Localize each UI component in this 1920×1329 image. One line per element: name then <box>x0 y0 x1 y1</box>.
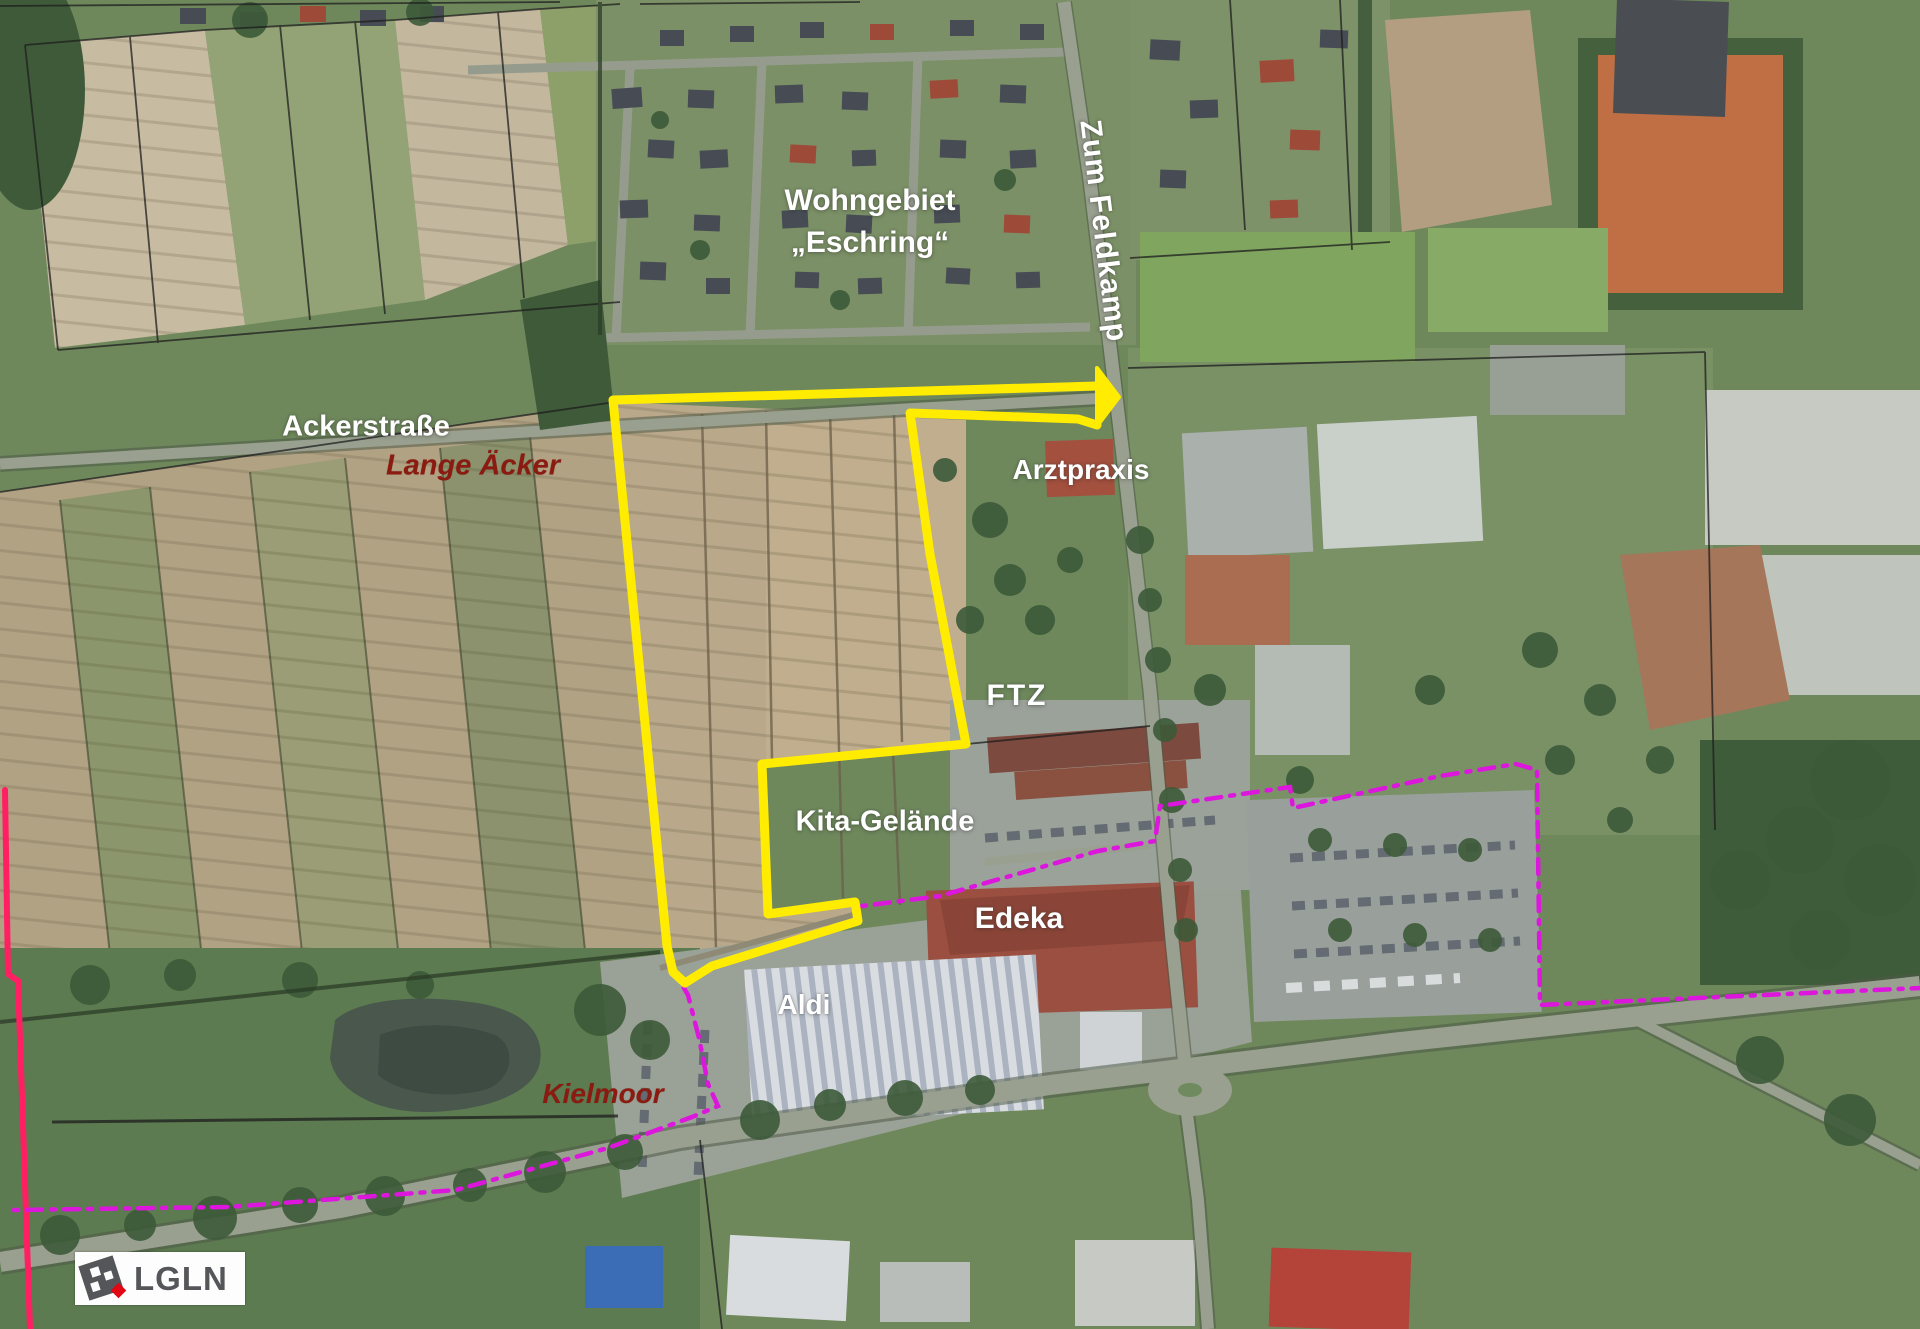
tree <box>1153 718 1177 742</box>
house-building <box>940 140 967 159</box>
tree <box>282 1187 318 1223</box>
house-building <box>852 150 877 167</box>
tree <box>1025 605 1055 635</box>
house-building <box>795 272 820 289</box>
tree <box>1766 806 1834 874</box>
house-building <box>1259 59 1294 83</box>
tree <box>574 984 626 1036</box>
area-label-line1: Wohngebiet <box>720 180 1020 222</box>
tree <box>830 290 850 310</box>
house-building <box>930 79 959 98</box>
lgln-logo-mark <box>75 1252 133 1305</box>
house-building <box>950 20 974 36</box>
house-building <box>1149 39 1180 61</box>
school-building <box>1182 427 1313 558</box>
house-building <box>1160 170 1187 189</box>
tree <box>1522 632 1558 668</box>
house-building <box>775 85 804 104</box>
area-label-kielmoor: Kielmoor <box>542 1080 663 1108</box>
house-building <box>611 87 642 109</box>
tree <box>1328 918 1352 942</box>
field-label-lange-aecker: Lange Äcker <box>386 452 560 481</box>
house-building <box>1000 85 1027 104</box>
tree <box>1824 1094 1876 1146</box>
house-building <box>706 278 730 294</box>
large-building <box>1705 390 1920 545</box>
poi-label-kita-gelaende: Kita-Gelände <box>796 808 975 837</box>
house-building <box>800 22 824 38</box>
tree <box>933 458 957 482</box>
house-building <box>180 8 206 24</box>
house-building <box>688 90 715 109</box>
house-building <box>694 215 721 232</box>
tree <box>740 1100 780 1140</box>
tree <box>1710 850 1770 910</box>
house-building <box>1270 200 1299 219</box>
tree <box>1308 828 1332 852</box>
tree <box>1138 588 1162 612</box>
building <box>726 1235 850 1321</box>
house-building <box>300 6 326 22</box>
poi-label-edeka: Edeka <box>975 904 1063 934</box>
tree <box>956 606 984 634</box>
house-building <box>648 139 675 158</box>
tree <box>40 1215 80 1255</box>
tree <box>1584 684 1616 716</box>
tree <box>965 1075 995 1105</box>
tree <box>164 959 196 991</box>
house-building <box>858 278 883 295</box>
poi-label-arztpraxis: Arztpraxis <box>1013 456 1150 484</box>
tree <box>70 965 110 1005</box>
tree <box>1126 526 1154 554</box>
tree <box>524 1151 566 1193</box>
house-building <box>660 30 684 46</box>
tree <box>690 240 710 260</box>
tree <box>1403 923 1427 947</box>
school-building <box>1317 416 1483 549</box>
house-building <box>1320 30 1349 49</box>
house-building <box>700 149 729 168</box>
field-parcel <box>1385 10 1552 232</box>
tree <box>1194 674 1226 706</box>
tree <box>193 1196 237 1240</box>
tree <box>1478 928 1502 952</box>
plaza <box>1185 555 1290 645</box>
tree <box>1159 787 1185 813</box>
building <box>1269 1248 1412 1329</box>
tree <box>1607 807 1633 833</box>
poi-label-aldi: Aldi <box>778 991 831 1019</box>
tree <box>124 1209 156 1241</box>
building <box>1075 1240 1195 1326</box>
house-building <box>1190 100 1219 119</box>
field-lange-aecker <box>0 402 668 1022</box>
poi-label-ftz: FTZ <box>987 681 1048 711</box>
tree <box>814 1089 846 1121</box>
house-building <box>620 200 649 219</box>
street-label-ackerstrasse: Ackerstraße <box>282 413 450 442</box>
lgln-logo: LGLN <box>75 1252 245 1305</box>
bare-ground <box>1620 545 1790 730</box>
tree <box>1168 858 1192 882</box>
tree <box>651 111 669 129</box>
house-building <box>842 92 869 111</box>
tree <box>1844 844 1916 916</box>
tree <box>972 502 1008 538</box>
tree <box>887 1080 923 1116</box>
house-building <box>640 262 667 281</box>
barn-building <box>1613 0 1729 117</box>
house-building <box>1010 149 1037 168</box>
tree <box>232 2 268 38</box>
tree <box>1646 746 1674 774</box>
house-building <box>1016 272 1041 289</box>
school-building <box>1255 645 1350 755</box>
tree <box>1145 647 1171 673</box>
sports-field <box>1428 228 1608 332</box>
sports-field <box>1140 232 1415 362</box>
tree <box>1057 547 1083 573</box>
area-label-line2: „Eschring“ <box>720 222 1020 264</box>
tree <box>994 564 1026 596</box>
building <box>1080 1012 1142 1070</box>
house-building <box>946 267 971 284</box>
tree <box>1810 740 1890 820</box>
house-building <box>360 10 386 26</box>
tree <box>1174 918 1198 942</box>
lgln-logo-text: LGLN <box>134 1260 228 1298</box>
house-building <box>730 26 754 42</box>
house-building <box>870 24 894 40</box>
house-building <box>1290 129 1321 150</box>
area-label-wohngebiet-eschring: Wohngebiet „Eschring“ <box>720 180 1020 264</box>
tree <box>1415 675 1445 705</box>
tree <box>630 1020 670 1060</box>
building <box>880 1262 970 1322</box>
aerial-map: Wohngebiet „Eschring“ Zum Feldkamp Acker… <box>0 0 1920 1329</box>
tree <box>1383 833 1407 857</box>
blue-building <box>585 1246 663 1308</box>
house-building <box>1020 24 1044 40</box>
tree <box>1458 838 1482 862</box>
tree <box>1790 910 1850 970</box>
tree <box>1736 1036 1784 1084</box>
tree <box>1545 745 1575 775</box>
house-building <box>790 144 817 163</box>
